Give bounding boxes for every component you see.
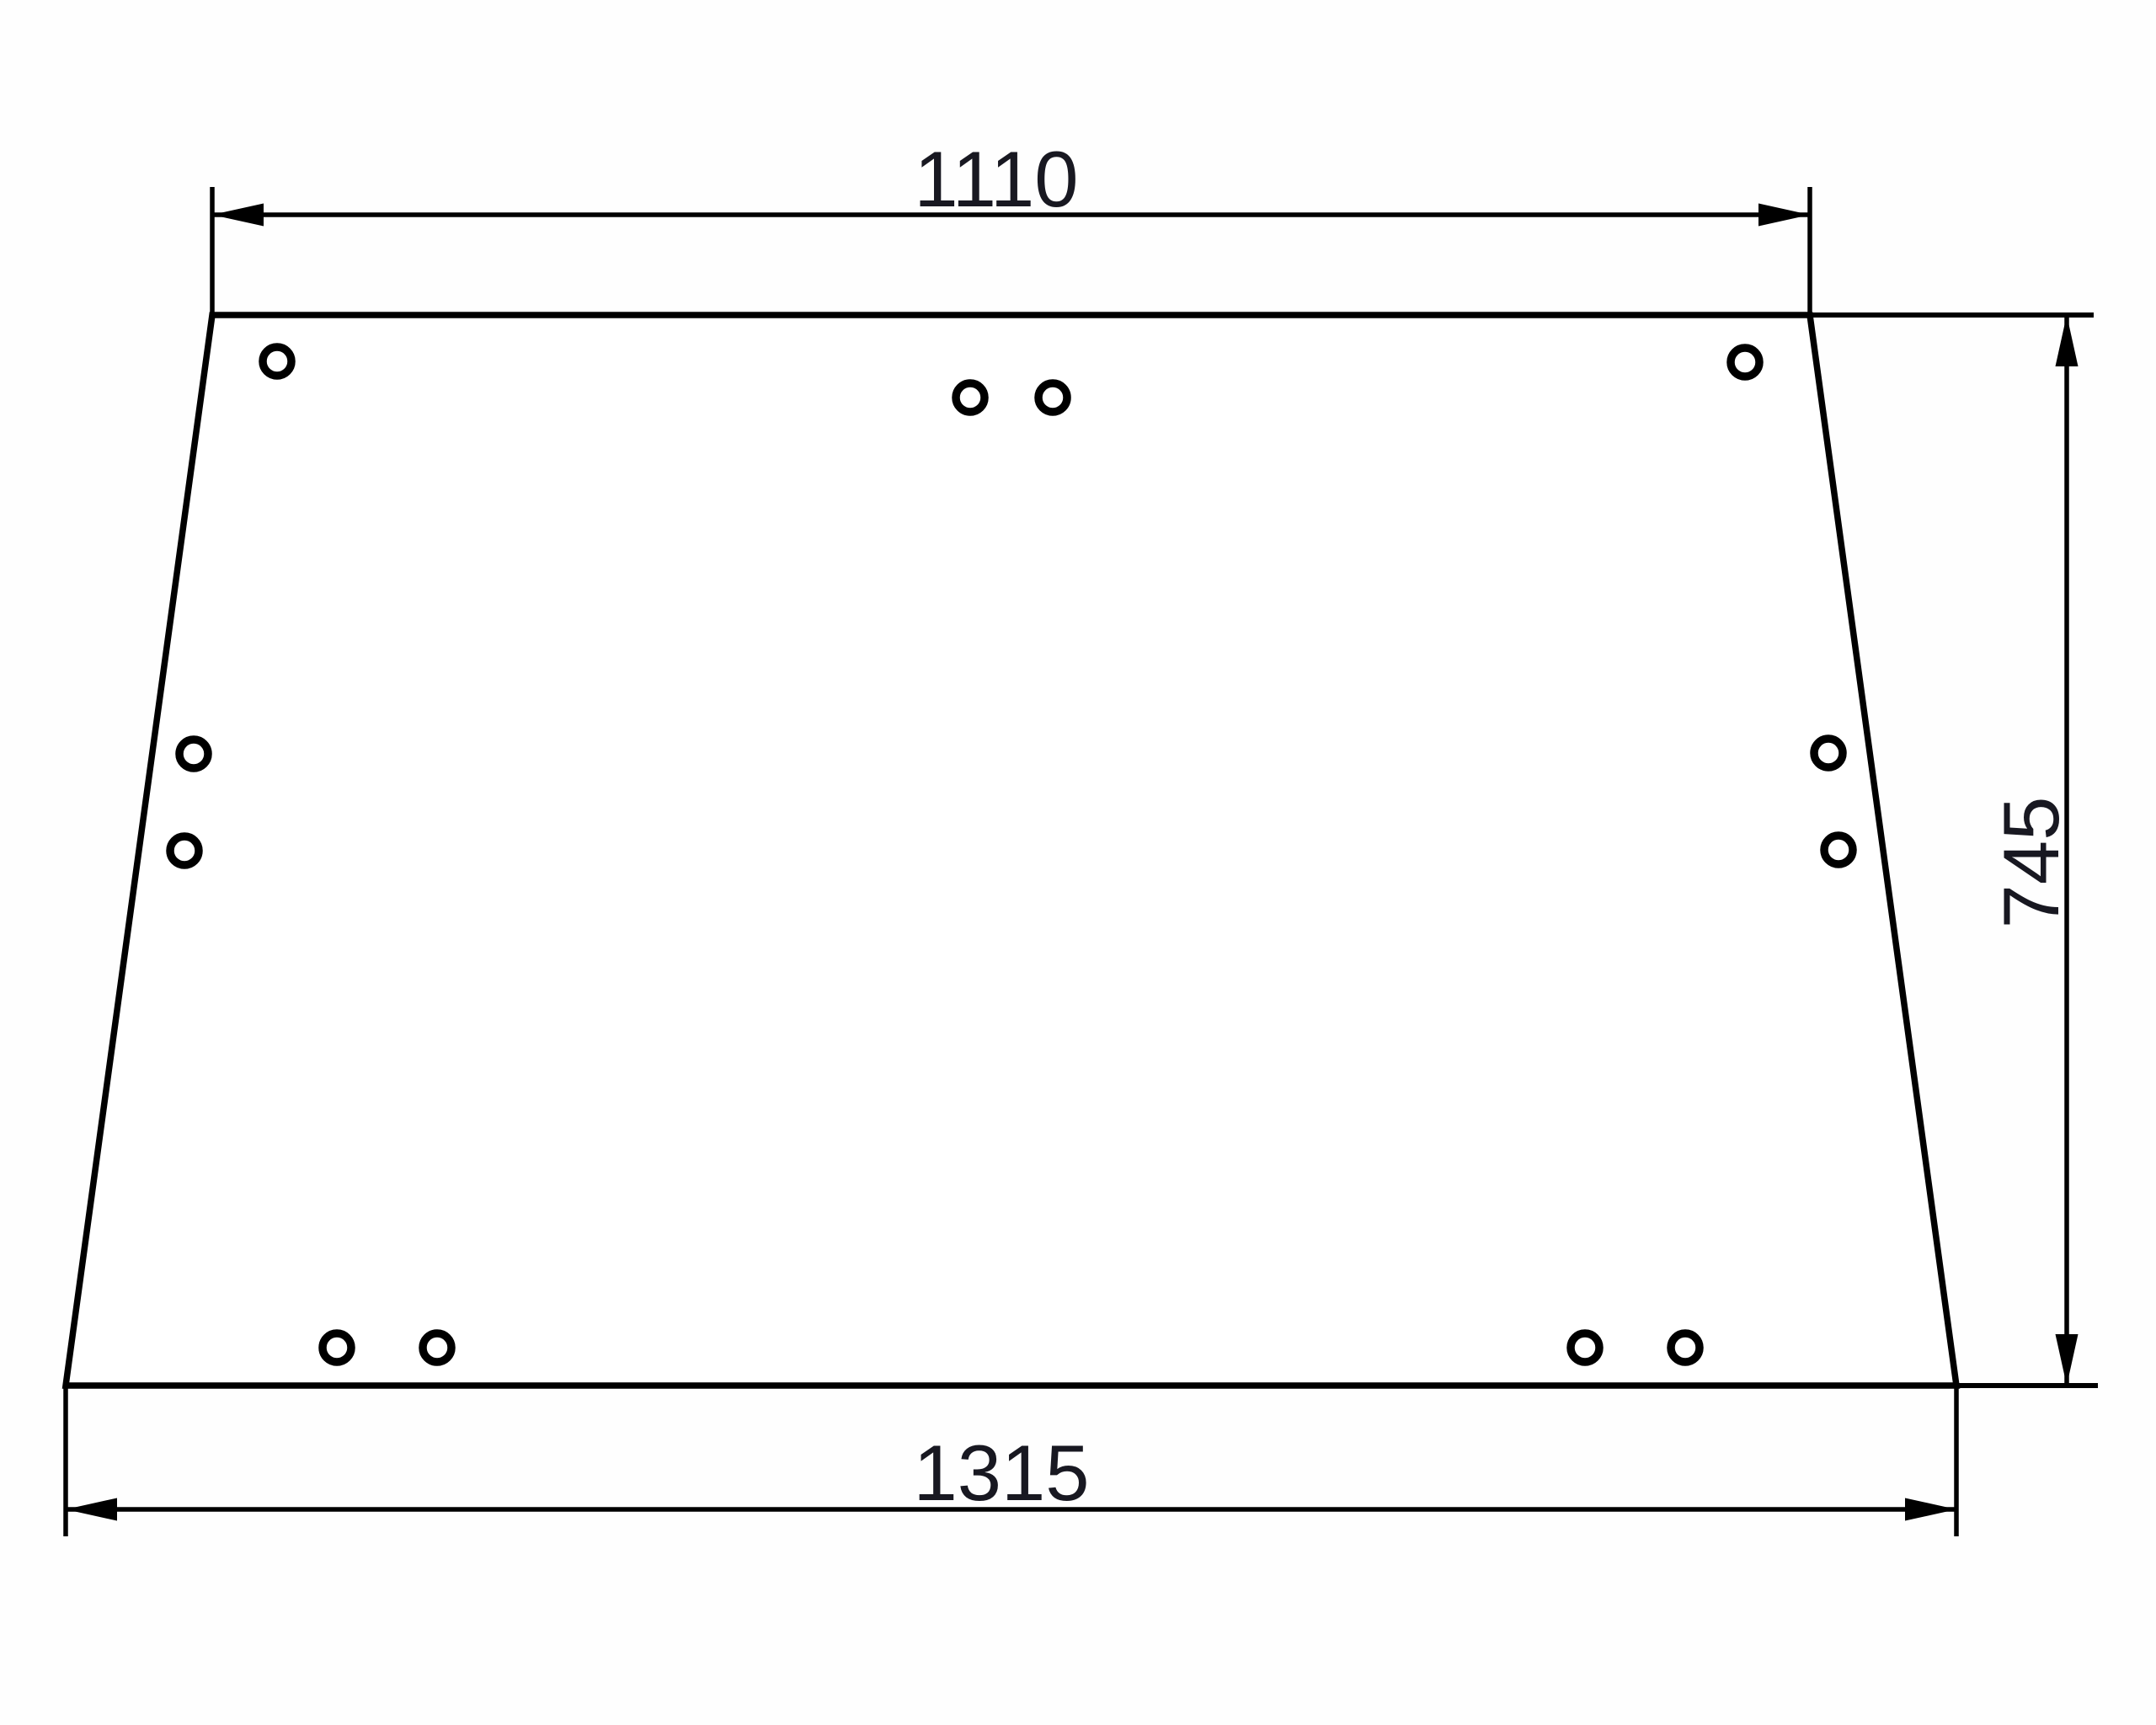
- svg-text:1110: 1110: [914, 135, 1078, 223]
- svg-text:745: 745: [1987, 797, 2075, 929]
- svg-text:1315: 1315: [913, 1429, 1089, 1517]
